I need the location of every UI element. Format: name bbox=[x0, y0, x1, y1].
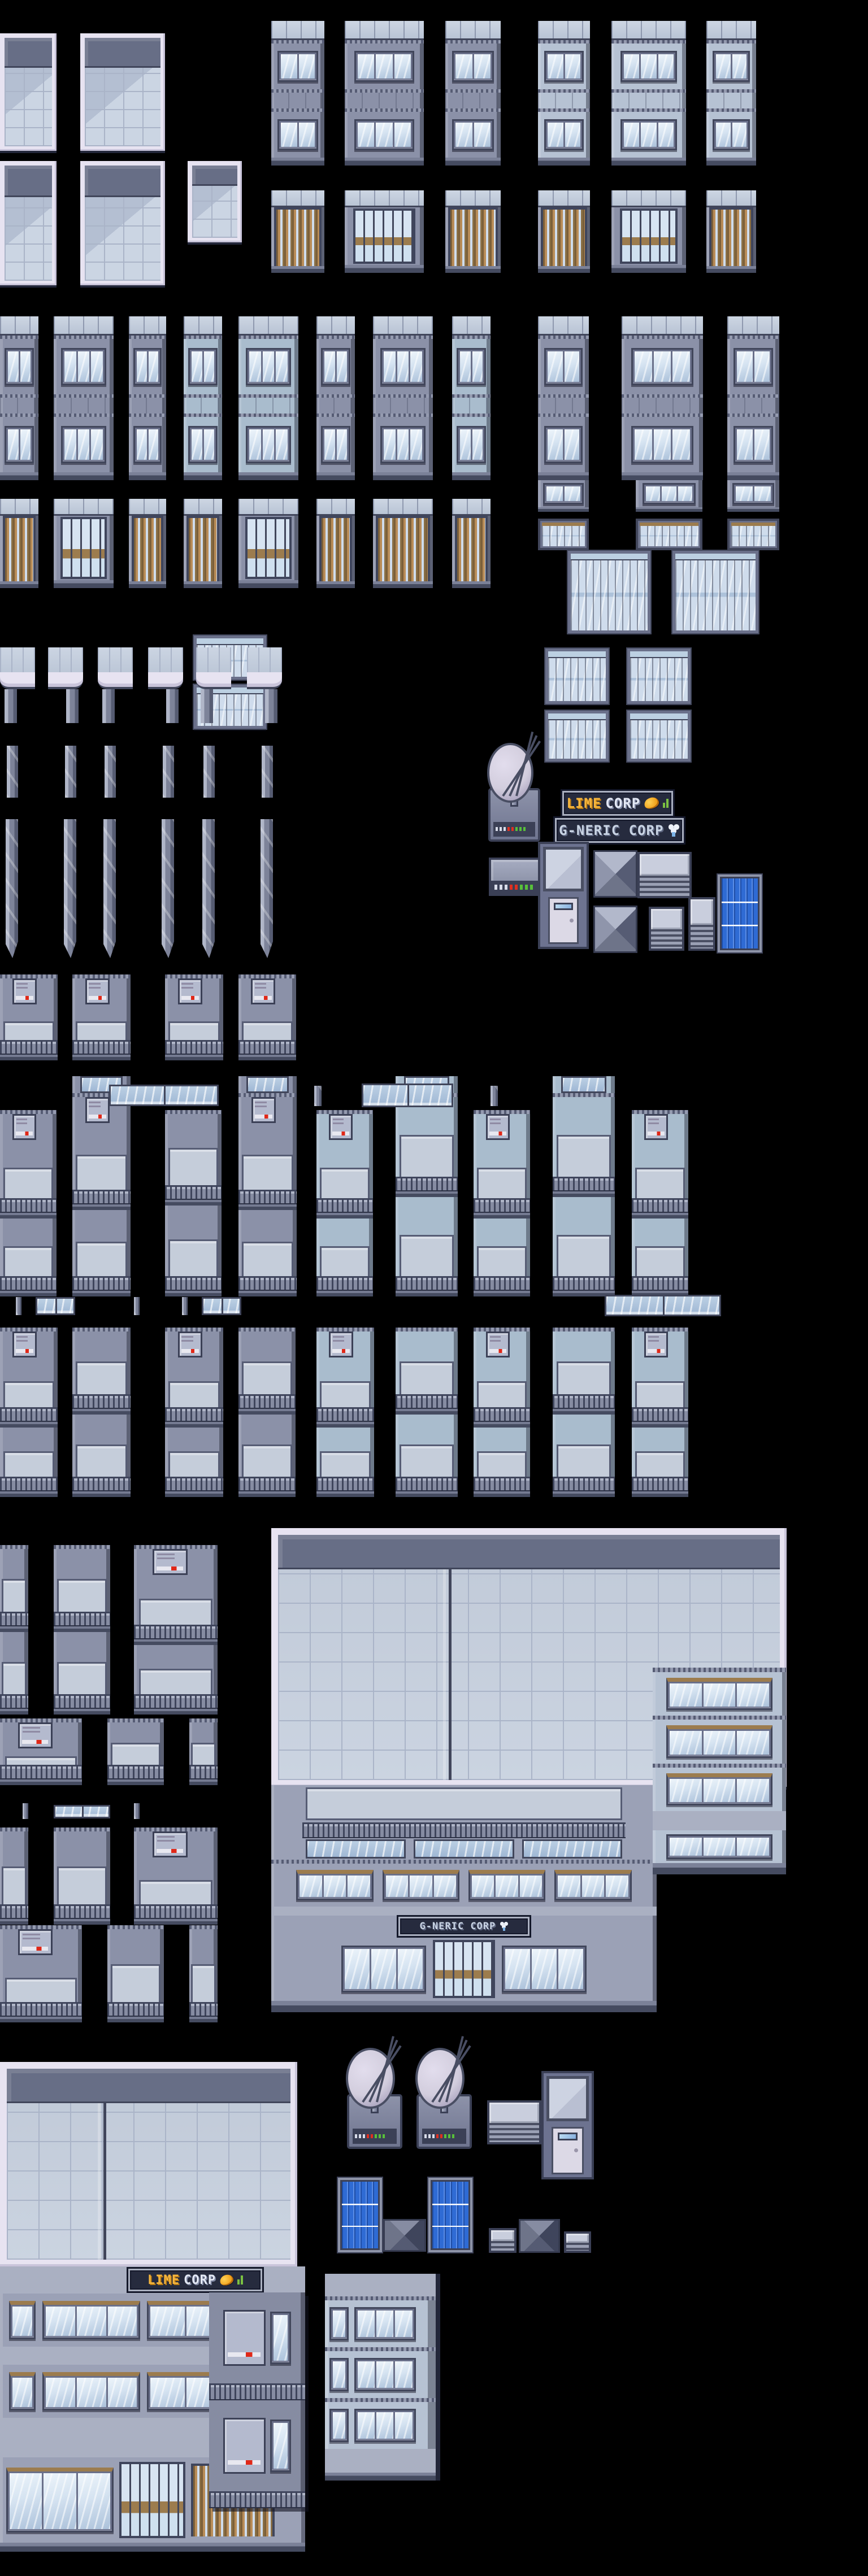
g-neric-headquarters-wing bbox=[653, 1668, 786, 1874]
window bbox=[544, 426, 583, 464]
window bbox=[734, 426, 773, 464]
window bbox=[270, 2420, 291, 2472]
balcony-rail bbox=[0, 1198, 57, 1213]
picture-window bbox=[320, 1246, 370, 1276]
facade-floor bbox=[0, 339, 38, 394]
cornice bbox=[165, 1110, 222, 1114]
window-pane bbox=[337, 429, 347, 460]
awning-strip bbox=[452, 499, 491, 516]
blank-wall-panel bbox=[306, 1787, 622, 1820]
glass-curtain bbox=[548, 658, 606, 701]
ground-floor-louvers bbox=[0, 499, 38, 588]
cornice bbox=[107, 1718, 164, 1722]
cornice bbox=[0, 1110, 57, 1114]
spandrel-wall bbox=[611, 93, 686, 108]
facade-base bbox=[238, 472, 298, 480]
entrance-doors bbox=[433, 1940, 494, 1999]
louver-vent-box bbox=[487, 2100, 541, 2144]
window bbox=[5, 426, 34, 464]
window-pane bbox=[20, 429, 31, 460]
window-pane bbox=[654, 429, 671, 460]
ac-vent-lines bbox=[16, 983, 28, 990]
building-base bbox=[653, 1863, 786, 1874]
louver-vent-box bbox=[688, 897, 715, 951]
window-pane bbox=[658, 54, 674, 79]
roof-post bbox=[491, 1086, 498, 1106]
window-pane bbox=[204, 429, 214, 460]
window-pane bbox=[299, 123, 315, 147]
window-pane bbox=[376, 2310, 393, 2336]
facade-floor bbox=[184, 339, 222, 394]
awning-strip bbox=[706, 190, 756, 207]
strip-mullion bbox=[407, 1085, 409, 1106]
unit-wall bbox=[134, 1645, 218, 1695]
window-pane bbox=[546, 486, 563, 501]
window bbox=[468, 1870, 545, 1901]
curtain-wall bbox=[672, 551, 758, 633]
dish-strut bbox=[445, 2037, 464, 2103]
cornice bbox=[325, 2296, 436, 2300]
clerestory-strip bbox=[202, 1297, 241, 1315]
unit-base bbox=[72, 1491, 131, 1497]
awning-strip bbox=[271, 190, 324, 207]
window-pane bbox=[78, 429, 90, 460]
picture-window bbox=[2, 1579, 27, 1611]
cornice bbox=[72, 1328, 131, 1331]
ac-vent-lines bbox=[23, 1934, 40, 1940]
facade-roof-strip bbox=[622, 316, 703, 336]
picture-window bbox=[76, 1021, 127, 1040]
corner-parapet bbox=[98, 672, 133, 689]
sign-band: G-NERIC CORP bbox=[271, 1916, 657, 1937]
indicator-light bbox=[424, 2134, 427, 2138]
g-neric-headquarters: G-NERIC CORP bbox=[271, 1785, 657, 2012]
window-pane bbox=[149, 351, 159, 382]
cornice bbox=[653, 1764, 786, 1768]
corner-parapet bbox=[196, 672, 231, 689]
unit-wall bbox=[107, 1722, 164, 1765]
balcony-rail bbox=[316, 1477, 374, 1491]
picture-window bbox=[635, 1246, 685, 1276]
wall-band bbox=[653, 1811, 786, 1830]
unit-base bbox=[54, 1919, 110, 1925]
window-pane bbox=[455, 123, 472, 147]
balcony-rail bbox=[54, 1904, 110, 1919]
window-pane bbox=[78, 351, 90, 382]
balcony-rail bbox=[134, 1694, 218, 1709]
transom-band bbox=[630, 713, 688, 720]
unit-wall bbox=[165, 1428, 223, 1477]
cornice bbox=[553, 1093, 615, 1097]
unit-wall bbox=[0, 1140, 57, 1198]
facade-base bbox=[622, 472, 703, 480]
facade-floor bbox=[538, 112, 590, 158]
balcony-rail bbox=[72, 1190, 131, 1204]
transom-band bbox=[630, 651, 688, 658]
indicator-light bbox=[383, 2134, 385, 2138]
ac-unit bbox=[12, 1114, 36, 1140]
glass-curtain bbox=[731, 526, 775, 546]
cabinet-door bbox=[548, 897, 579, 944]
ac-unit bbox=[644, 1114, 668, 1140]
window-pane bbox=[520, 1876, 542, 1898]
indicator-light bbox=[375, 2134, 377, 2138]
picture-window bbox=[3, 1381, 54, 1407]
window-pane bbox=[565, 123, 580, 147]
facade-base bbox=[373, 581, 433, 588]
apartment-block bbox=[316, 1328, 374, 1497]
office-facade bbox=[706, 21, 756, 166]
wall-pillar bbox=[202, 819, 215, 958]
balcony-rail bbox=[189, 1765, 218, 1779]
unit-wall bbox=[0, 1632, 28, 1695]
unit-wall bbox=[632, 1357, 688, 1407]
indicator-panel bbox=[491, 881, 541, 894]
wall-pillar bbox=[6, 819, 18, 958]
indicator-light bbox=[371, 2134, 373, 2138]
window-pane bbox=[662, 486, 676, 501]
picture-window bbox=[168, 1148, 218, 1185]
curtain-wall bbox=[568, 551, 650, 633]
corner-glass bbox=[148, 647, 183, 672]
balcony-rail bbox=[72, 1477, 131, 1491]
window bbox=[631, 348, 693, 386]
roof-post bbox=[23, 1803, 28, 1819]
indicator-light bbox=[379, 2134, 381, 2138]
window bbox=[329, 2358, 349, 2391]
apartment-block bbox=[632, 1110, 688, 1296]
spandrel-wall bbox=[373, 398, 433, 414]
ground-band bbox=[325, 2449, 436, 2473]
window-pane bbox=[565, 351, 580, 382]
indicator-light bbox=[496, 827, 498, 831]
apartment-block bbox=[0, 1545, 28, 1715]
indicator-light bbox=[510, 885, 513, 890]
office-facade bbox=[184, 316, 222, 480]
awning-strip bbox=[445, 190, 501, 207]
facade-base bbox=[271, 266, 324, 273]
vent-lid bbox=[489, 2103, 539, 2123]
window-pane bbox=[716, 123, 731, 147]
ground-floor-entrance bbox=[345, 190, 424, 273]
roof-glass bbox=[85, 195, 160, 281]
office-facade bbox=[727, 316, 779, 480]
window-pane bbox=[281, 54, 297, 79]
window-pane bbox=[641, 54, 656, 79]
ac-unit bbox=[329, 1331, 353, 1357]
balcony-rail bbox=[165, 1040, 223, 1055]
awning-strip bbox=[0, 499, 38, 516]
balcony-rail bbox=[238, 1394, 296, 1409]
louver-slats bbox=[274, 207, 322, 266]
facade-base bbox=[54, 580, 114, 588]
entrance-bay bbox=[238, 516, 298, 580]
ac-vent-lines bbox=[89, 1102, 100, 1108]
spandrel-wall bbox=[538, 93, 590, 108]
picture-window bbox=[242, 1155, 293, 1189]
window bbox=[61, 426, 107, 464]
window bbox=[666, 1725, 773, 1757]
indicator-light bbox=[359, 2134, 361, 2138]
solar-panel bbox=[428, 2178, 472, 2252]
curtain-wall bbox=[545, 649, 609, 704]
ac-stripe bbox=[16, 996, 33, 1000]
solar-cells bbox=[342, 2182, 378, 2248]
balcony-rail bbox=[632, 1407, 688, 1422]
balcony-rail bbox=[632, 1477, 688, 1491]
balcony-rail bbox=[238, 1477, 296, 1491]
window bbox=[188, 426, 218, 464]
window-pane bbox=[558, 1949, 583, 1990]
tileset-sheet: LIMECORPG-NERIC CORPG-NERIC CORPLIMECORP bbox=[0, 0, 868, 2576]
facade-roof-strip bbox=[345, 21, 424, 40]
spandrel-wall bbox=[622, 398, 703, 414]
glass-curtain bbox=[675, 560, 756, 630]
spandrel-wall bbox=[0, 398, 38, 414]
unit-base bbox=[553, 1409, 615, 1415]
window-pane bbox=[276, 351, 288, 382]
unit-base bbox=[165, 1200, 222, 1206]
facade-base bbox=[611, 158, 686, 166]
window-pane bbox=[754, 486, 771, 501]
office-floor bbox=[653, 1720, 786, 1763]
facade-floor bbox=[0, 417, 38, 472]
ground-floor-louvers bbox=[184, 499, 222, 588]
window-pane bbox=[348, 1876, 370, 1898]
balcony-rail bbox=[474, 1198, 530, 1213]
unit-wall bbox=[474, 1219, 530, 1277]
awning-strip bbox=[538, 190, 590, 207]
unit-base bbox=[189, 2017, 218, 2022]
window bbox=[9, 2301, 36, 2339]
louver-slats bbox=[132, 516, 163, 581]
apartment-block bbox=[396, 1328, 458, 1497]
unit-base bbox=[396, 1291, 458, 1296]
spandrel-wall bbox=[538, 398, 589, 414]
window-pane bbox=[672, 351, 689, 382]
window-pane bbox=[10, 2473, 42, 2529]
window-pane bbox=[358, 2361, 375, 2387]
window-pane bbox=[455, 54, 472, 79]
unit-wall bbox=[396, 1197, 458, 1277]
window-pane bbox=[670, 1731, 702, 1754]
entrance-bay bbox=[611, 207, 686, 265]
unit-wall bbox=[238, 1331, 296, 1394]
window-pane bbox=[337, 351, 347, 382]
facade-base bbox=[538, 158, 590, 166]
unit-wall bbox=[474, 1428, 530, 1477]
ac-stripe bbox=[255, 1115, 272, 1119]
facade-base bbox=[54, 472, 114, 480]
louver-vent-box bbox=[637, 852, 692, 898]
indicator-light bbox=[504, 827, 506, 831]
window-pane bbox=[77, 2307, 106, 2336]
ac-vent-lines bbox=[16, 1119, 28, 1125]
window-pane bbox=[737, 1838, 769, 1856]
window-pane bbox=[300, 1876, 322, 1898]
window-pane bbox=[386, 1876, 408, 1898]
roof-edge-corner bbox=[196, 647, 231, 723]
glass-doors bbox=[245, 517, 292, 578]
cornice bbox=[474, 1328, 530, 1331]
window-pane bbox=[397, 429, 409, 460]
spandrel-wall bbox=[54, 398, 114, 414]
transom-band bbox=[548, 651, 606, 658]
sign-word-text: CORP bbox=[605, 795, 640, 811]
window-pane bbox=[137, 429, 147, 460]
facade-floor bbox=[271, 112, 324, 158]
tower-floor bbox=[209, 2292, 305, 2383]
louver-vent-box bbox=[489, 2228, 517, 2253]
apartment-block bbox=[189, 1718, 218, 1785]
facade-floor bbox=[54, 339, 114, 394]
window-pane bbox=[737, 429, 752, 460]
rooftop-unit bbox=[238, 974, 296, 1060]
cabinet-band bbox=[543, 891, 584, 897]
unit-base bbox=[0, 1626, 28, 1632]
balcony-rail bbox=[632, 1276, 688, 1291]
sign-band: LIMECORP bbox=[0, 2266, 305, 2294]
window-pane bbox=[670, 1838, 702, 1856]
ac-vent-lines bbox=[16, 1336, 28, 1343]
cabinet-band bbox=[546, 2121, 589, 2127]
roof-edge-corner bbox=[98, 647, 133, 723]
unit-wall bbox=[165, 1357, 223, 1407]
picture-window bbox=[242, 1021, 293, 1040]
ground-floor bbox=[653, 1830, 786, 1863]
unit-base bbox=[107, 1779, 164, 1785]
wall-pillar bbox=[162, 819, 174, 958]
unit-wall bbox=[54, 1549, 110, 1612]
rooftop-unit bbox=[165, 974, 223, 1060]
apartment-block bbox=[134, 1827, 218, 1925]
unit-base bbox=[632, 1491, 688, 1497]
door-knob bbox=[570, 919, 574, 923]
picture-window bbox=[168, 1021, 220, 1040]
window-pane bbox=[672, 429, 689, 460]
facade-base bbox=[538, 472, 589, 480]
strip-mullion bbox=[82, 1807, 84, 1817]
picture-window bbox=[111, 1743, 160, 1765]
unit-base bbox=[238, 1409, 296, 1415]
window-pane bbox=[358, 54, 374, 79]
corner-parapet bbox=[247, 672, 282, 689]
roof-parapet bbox=[192, 166, 237, 184]
ac-vent-lines bbox=[157, 1554, 175, 1560]
unit-wall bbox=[134, 1857, 218, 1904]
glass-curtain bbox=[548, 720, 606, 759]
window bbox=[620, 119, 677, 150]
window bbox=[713, 51, 750, 82]
facade-floor bbox=[727, 417, 779, 472]
facade-base bbox=[538, 507, 589, 512]
console-top bbox=[491, 860, 541, 881]
window-pane bbox=[8, 429, 18, 460]
apartment-block bbox=[553, 1076, 615, 1296]
apartment-block bbox=[0, 1718, 82, 1785]
solar-panel bbox=[338, 2178, 382, 2252]
office-facade bbox=[316, 316, 355, 480]
bar bbox=[237, 2279, 240, 2284]
balcony-rail bbox=[72, 1276, 131, 1291]
window-pane bbox=[754, 351, 770, 382]
office-facade bbox=[0, 316, 38, 480]
balcony-rail bbox=[0, 1040, 58, 1055]
tower-stack bbox=[209, 2292, 305, 2508]
unit-wall bbox=[316, 1428, 374, 1477]
signal-bars-icon bbox=[237, 2275, 243, 2284]
ac-unit bbox=[223, 2310, 266, 2366]
window-strip bbox=[414, 1839, 514, 1858]
rooftop-unit bbox=[72, 974, 131, 1060]
cornice bbox=[553, 1328, 615, 1331]
window-pane bbox=[472, 351, 483, 382]
unit-base bbox=[396, 1491, 458, 1497]
facade-roof-strip bbox=[316, 316, 355, 336]
louver-slats bbox=[3, 516, 36, 581]
clerestory-strip bbox=[362, 1084, 453, 1107]
picture-window bbox=[191, 1743, 216, 1765]
window bbox=[188, 348, 218, 386]
ac-vent-lines bbox=[255, 983, 266, 990]
strip-mullion bbox=[663, 1296, 665, 1315]
spandrel-wall bbox=[706, 93, 756, 108]
window-pane bbox=[460, 429, 470, 460]
unit-wall bbox=[316, 1140, 373, 1198]
unit-base bbox=[54, 1626, 110, 1632]
unit-wall bbox=[165, 1004, 223, 1040]
cornice bbox=[653, 1668, 786, 1672]
window-pane bbox=[333, 2361, 345, 2387]
facade-roof-strip bbox=[706, 21, 756, 40]
window-pane bbox=[565, 54, 580, 79]
corner-column bbox=[5, 689, 17, 723]
ac-unit bbox=[486, 1331, 510, 1357]
window-pane bbox=[192, 429, 202, 460]
balcony-rail bbox=[0, 1765, 82, 1779]
roof-parapet bbox=[5, 166, 52, 195]
facade-floor bbox=[345, 112, 424, 158]
wall-pillar bbox=[64, 819, 76, 958]
clerestory-strip bbox=[605, 1295, 721, 1316]
cornice bbox=[54, 1545, 110, 1549]
window bbox=[6, 2468, 114, 2533]
window bbox=[554, 1870, 631, 1901]
clerestory-window bbox=[246, 1076, 288, 1093]
ac-stripe bbox=[157, 1849, 183, 1853]
balcony-rail bbox=[54, 1612, 110, 1626]
unit-base bbox=[0, 2017, 82, 2022]
ground-floor-louvers bbox=[538, 190, 590, 273]
picture-window bbox=[57, 1579, 107, 1611]
unit-base bbox=[316, 1291, 373, 1296]
louver-slats bbox=[186, 516, 219, 581]
ac-vent-lines bbox=[181, 983, 193, 990]
unit-wall bbox=[72, 1331, 131, 1394]
unit-base bbox=[72, 1291, 131, 1296]
clerestory-strip bbox=[54, 1805, 110, 1818]
corner-glass bbox=[48, 647, 83, 672]
dish-reflector bbox=[415, 2048, 465, 2109]
entrance-bay bbox=[54, 516, 114, 580]
window-pane bbox=[91, 429, 103, 460]
ground-floor-louvers bbox=[271, 190, 324, 273]
office-floor bbox=[325, 2300, 436, 2347]
window bbox=[620, 51, 677, 82]
balcony-rail bbox=[0, 1694, 28, 1709]
facade-roof-strip bbox=[538, 316, 589, 336]
facade-floor bbox=[445, 43, 501, 89]
